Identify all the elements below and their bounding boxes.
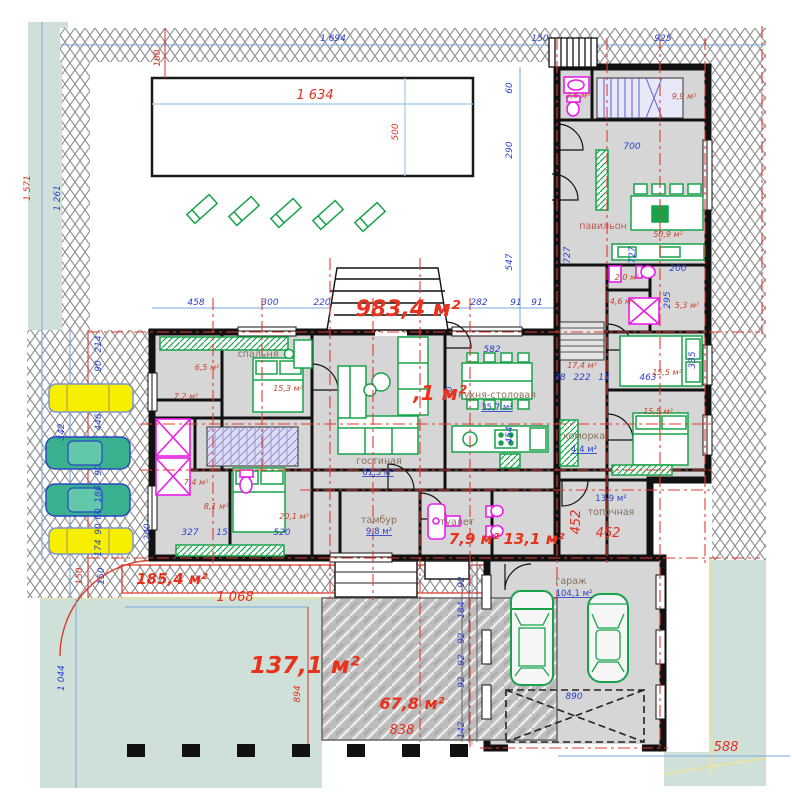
dim-label: 300	[261, 298, 278, 308]
dim-label: 1 571	[23, 175, 33, 201]
room-area-small: 5,3 м²	[675, 301, 700, 310]
dim-label: 15	[216, 528, 228, 538]
car-yellow	[49, 384, 133, 412]
room-area-small: 15,5 м²	[643, 407, 673, 416]
dim-label: 214	[94, 335, 104, 352]
dim-label: 894	[293, 685, 303, 702]
room-name: тамбур	[361, 515, 397, 526]
dim-label: 838	[390, 723, 415, 738]
car-suv	[511, 591, 553, 685]
site-area: 13,1 м²	[503, 530, 564, 548]
dim-label: 520	[273, 528, 290, 538]
dim-label: 92	[457, 632, 467, 644]
room-area-small: 15,3 м²	[273, 384, 303, 393]
dim-label: 220	[313, 298, 330, 308]
dim-label: 91	[510, 298, 521, 308]
dim-label: 60	[505, 82, 515, 94]
dim-label: 1 044	[57, 665, 67, 691]
room-area-small: 8,1 м²	[204, 502, 229, 511]
room-area-small: 17,4 м²	[567, 361, 597, 370]
room-area-small: 2,0 м²	[615, 273, 640, 282]
site-area: 185,4 м²	[136, 570, 208, 588]
dim-label: 92	[457, 576, 467, 588]
car-green	[46, 484, 130, 516]
site-area: 67,8 м²	[379, 694, 444, 713]
dim-label: 38	[554, 373, 566, 383]
dim-label: 547	[505, 253, 515, 270]
room-area-small: 15,5 м²	[652, 368, 682, 377]
dim-label: 727	[628, 246, 638, 263]
dim-label: 90	[94, 523, 104, 535]
dim-label: 100	[153, 49, 163, 66]
wing-stairs	[597, 78, 683, 118]
room-name: спальня	[238, 349, 279, 360]
dim-label: 150	[97, 567, 107, 584]
car-sedan	[588, 594, 628, 682]
room-area: 9,8 м²	[366, 527, 392, 537]
dim-label: 890	[565, 692, 582, 702]
dim-label: 90	[94, 360, 104, 372]
room-name: туалет	[440, 517, 475, 528]
site-area: 137,1 м²	[250, 653, 360, 679]
room-area-small: 4,6 м²	[610, 297, 635, 306]
dim-label: 452	[569, 510, 584, 535]
room-area: 35,7 м²	[481, 403, 512, 413]
site-area: 7,9 м²	[449, 530, 500, 548]
parking-cars	[46, 384, 133, 554]
room-area-small: 6,5 м²	[195, 363, 220, 372]
dim-label: 727	[563, 246, 573, 263]
room-area-small: 20,1 м²	[279, 512, 309, 521]
room-area: 61,3 м²	[362, 468, 393, 478]
desk	[294, 340, 312, 368]
dim-label: 1 068	[216, 590, 253, 605]
dim-label: 200	[669, 264, 686, 274]
floor-plan-canvas: 1 6941509251001 5711 2611 63450060290547…	[0, 0, 792, 804]
dim-label: 582	[483, 345, 500, 355]
sun-loungers	[187, 195, 385, 232]
dim-label: 462	[596, 526, 621, 541]
room-area: 4,4 м²	[571, 445, 597, 455]
dim-label: 222	[573, 373, 590, 383]
car-green	[46, 437, 130, 469]
toilet	[240, 470, 253, 493]
car-yellow	[49, 528, 133, 554]
dim-label: 454	[505, 426, 515, 443]
room-name: коморка	[563, 431, 605, 442]
exterior-steps	[549, 38, 597, 67]
dim-label: 700	[623, 142, 640, 152]
dim-label: 60	[94, 508, 104, 520]
dim-label: 91	[531, 298, 542, 308]
dim-label: 335	[688, 351, 698, 368]
dim-label: 1 634	[296, 88, 333, 103]
dim-label: 15	[598, 373, 610, 383]
room-name: кухня-столовая	[458, 390, 536, 401]
floor-plan-drawing: 1 6941509251001 5711 2611 63450060290547…	[0, 0, 792, 804]
room-area-small: 2,6 м²	[566, 91, 591, 100]
entry-steps	[335, 561, 417, 597]
dim-label: 295	[663, 291, 673, 308]
shower	[156, 458, 190, 495]
dim-label: 342	[57, 423, 67, 440]
dim-label: 184	[457, 601, 467, 618]
wardrobe	[176, 545, 284, 556]
chair	[285, 350, 294, 359]
toilet	[486, 506, 503, 518]
room-name: павильон	[579, 221, 627, 232]
room-area-small: 50,9 м²	[653, 230, 683, 239]
closet-shelf	[560, 420, 578, 466]
room-name: гостиная	[356, 456, 401, 467]
room-area-small: 7,4 м²	[184, 478, 209, 487]
dim-label: 186	[94, 485, 104, 502]
dim-label: 90	[94, 464, 104, 476]
dim-label: 92	[457, 676, 467, 688]
room-name: топочная	[588, 507, 635, 518]
site-area: ,1 м²	[412, 381, 467, 405]
dim-label: 290	[505, 141, 515, 158]
dim-label: 446	[94, 413, 104, 430]
site-area: 983,4 м²	[356, 297, 461, 322]
dim-label: 327	[181, 528, 198, 538]
dim-label: 142	[457, 721, 467, 738]
dim-label: 1 261	[53, 185, 63, 211]
room-area-small: 9,9 м²	[672, 92, 697, 101]
dim-label: 150	[75, 567, 85, 584]
dim-label: 240	[143, 523, 153, 540]
room-area-small: 7,2 м²	[174, 392, 199, 401]
room-name: гараж	[555, 576, 587, 587]
dim-label: 588	[714, 740, 739, 755]
dim-label: 1 694	[320, 34, 346, 44]
room-area: 13,9 м²	[595, 494, 626, 504]
dim-label: 925	[654, 34, 671, 44]
room-area: 104,1 м²	[556, 589, 593, 599]
dim-label: 282	[470, 298, 487, 308]
dim-label: 458	[187, 298, 204, 308]
dim-label: 174	[94, 539, 104, 556]
dim-label: 500	[391, 123, 401, 140]
dim-label: 92	[457, 654, 467, 666]
dim-label: 150	[531, 34, 548, 44]
